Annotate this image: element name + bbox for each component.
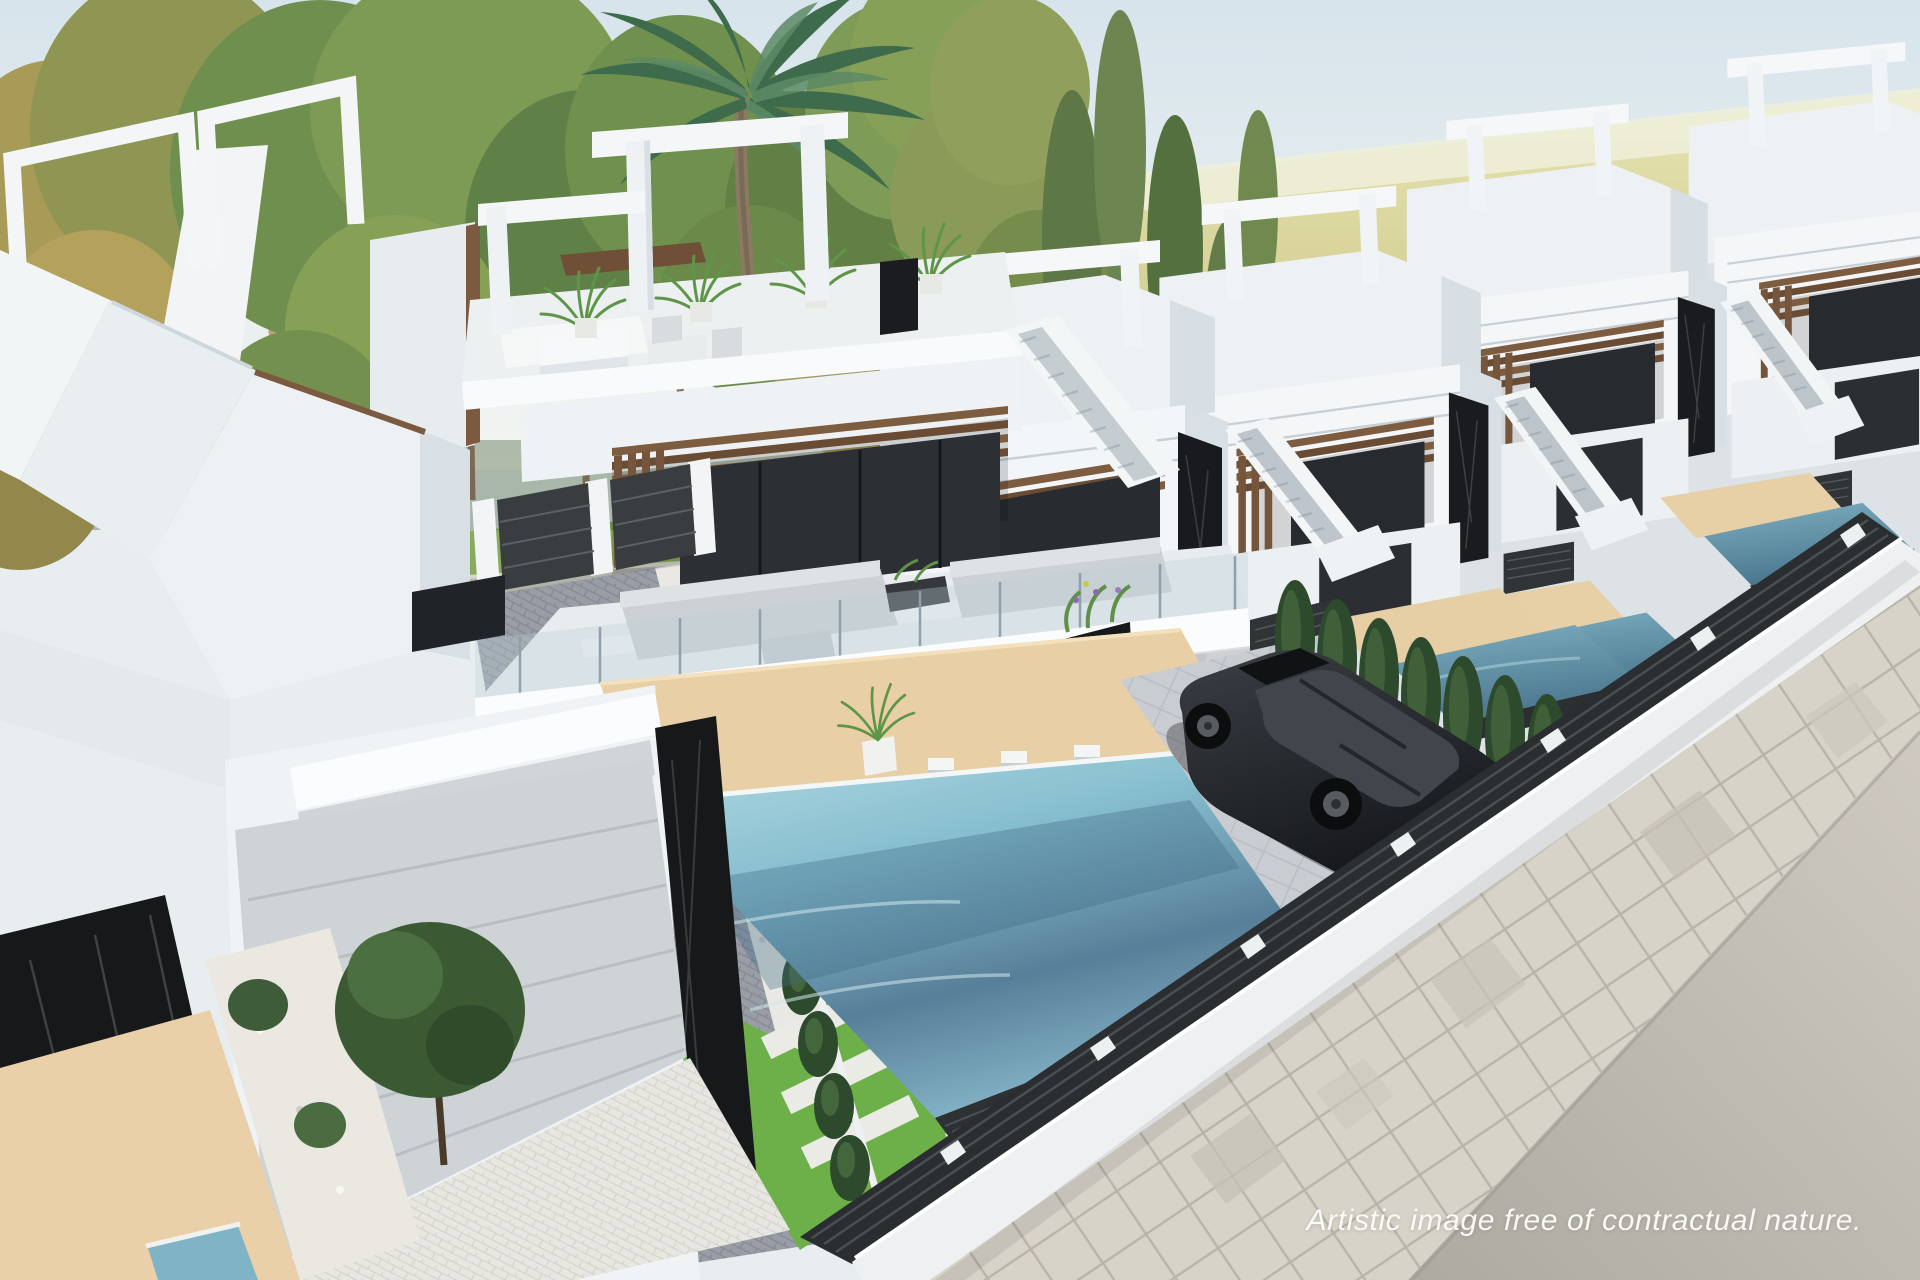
villa-render-illustration [0, 0, 1920, 1280]
rendered-image: Artistic image free of contractual natur… [0, 0, 1920, 1280]
watermark-text: Artistic image free of contractual natur… [1307, 1204, 1862, 1238]
